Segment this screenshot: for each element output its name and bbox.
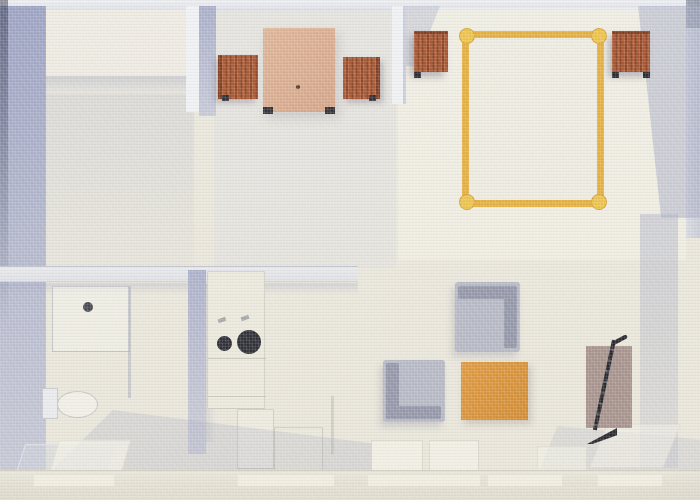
partition-wall-entry-face	[199, 6, 216, 116]
bed-post-bottom-right	[591, 194, 607, 210]
bed-post-top-right	[591, 28, 607, 44]
shower[interactable]	[52, 286, 130, 352]
counter-divider-line-2	[208, 396, 266, 397]
burner-small	[217, 336, 232, 351]
screen-photo	[0, 0, 700, 500]
bed-post-bottom-left	[459, 194, 475, 210]
bottom-window-5	[598, 475, 662, 486]
dining-chair-right[interactable]	[343, 57, 380, 99]
bottom-window-3	[368, 475, 480, 486]
window-light-patch-2	[429, 440, 479, 472]
dining-chair-left[interactable]	[218, 55, 258, 99]
chair-foot	[369, 95, 376, 101]
bed-frame	[462, 31, 604, 207]
armchair-1[interactable]	[455, 282, 520, 352]
floorplan-scene	[0, 0, 700, 500]
bed-post-top-left	[459, 28, 475, 44]
bottom-outside-strip	[0, 490, 700, 500]
shower-drain	[83, 302, 93, 312]
bed[interactable]	[462, 31, 604, 207]
toilet[interactable]	[42, 386, 100, 422]
toilet-bowl	[57, 391, 98, 418]
shower-glass-panel	[128, 286, 131, 398]
nightstand-foot-right	[643, 72, 650, 78]
armchair-back-right	[504, 286, 517, 348]
window-light-patch-bath	[49, 440, 131, 474]
wardrobe-shadow	[46, 76, 190, 94]
lamp-base	[587, 428, 617, 444]
armchair-2[interactable]	[383, 360, 445, 422]
armchair-back-bottom	[386, 406, 441, 419]
table-knot	[296, 85, 300, 89]
faucet-large	[241, 315, 250, 321]
toilet-tank	[42, 388, 58, 419]
partition-wall-entry-top	[186, 6, 199, 112]
lamp-pole	[593, 340, 616, 431]
bottom-window-1	[34, 475, 114, 486]
dining-table[interactable]	[263, 28, 335, 112]
burner-large	[237, 330, 261, 354]
nightstand-left[interactable]	[414, 31, 448, 72]
nightstand-foot	[414, 72, 421, 78]
counter-divider-line-1	[208, 358, 266, 359]
nightstand-foot-left	[612, 72, 619, 78]
bottom-window-2	[238, 475, 334, 486]
faucet-small	[218, 317, 227, 323]
table-foot-left	[263, 107, 273, 114]
entry-wardrobe[interactable]	[46, 10, 186, 76]
entry-floor-shade	[46, 94, 194, 280]
window-light-patch-1	[371, 440, 423, 472]
table-foot-right	[325, 107, 335, 114]
partition-wall-entry	[186, 6, 216, 116]
coffee-table[interactable]	[461, 362, 528, 420]
mid-wall	[0, 266, 358, 282]
bottom-wall	[0, 470, 700, 490]
partition-wall-bedroom	[392, 6, 406, 104]
nightstand-right[interactable]	[612, 31, 650, 72]
floor-lamp[interactable]	[584, 332, 636, 448]
chair-foot	[222, 95, 229, 101]
kitchen-counter[interactable]	[207, 271, 265, 409]
bottom-window-4	[488, 475, 562, 486]
